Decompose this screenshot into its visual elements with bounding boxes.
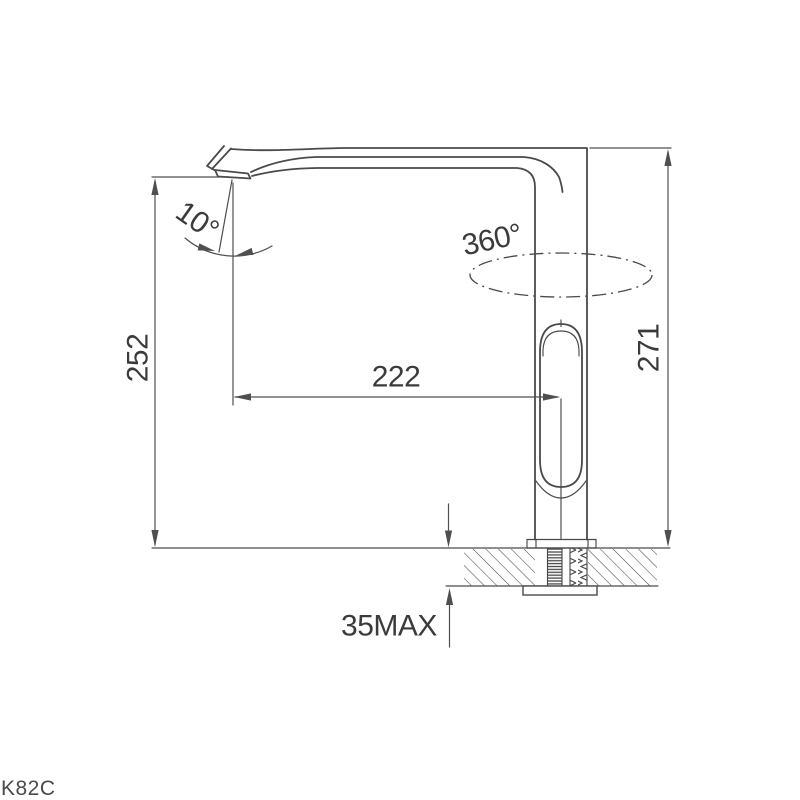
arrowhead	[151, 178, 158, 195]
supply-hose-section	[570, 549, 587, 587]
swivel-annotation: 360°	[459, 218, 652, 297]
spout-reach-label: 222	[372, 361, 421, 394]
countertop-hatch-right	[588, 549, 657, 586]
spout-height-label: 252	[122, 334, 155, 383]
angle-arrow-right	[235, 248, 253, 259]
arrowhead	[446, 588, 453, 605]
arrowhead	[664, 530, 671, 547]
dimension-deck-thickness: 35MAX	[341, 504, 453, 647]
drawing-canvas: 360° 10° 252 222	[0, 0, 800, 800]
spout-mid-line	[251, 157, 563, 192]
swivel-ellipse	[470, 253, 652, 297]
overall-height-label: 271	[633, 324, 666, 373]
dimension-spout-reach: 222	[233, 183, 560, 405]
base-flange	[527, 540, 596, 549]
arrowhead	[445, 531, 452, 548]
faucet-technical-drawing: 360° 10° 252 222	[0, 0, 800, 800]
countertop-hatch-left	[464, 549, 535, 586]
mounting-nut	[523, 586, 597, 595]
spout-angle-annotation: 10°	[170, 180, 272, 259]
angle-reference-line	[219, 180, 232, 252]
deck-thickness-label: 35MAX	[341, 610, 437, 643]
arrowhead	[664, 149, 671, 166]
faucet-outline	[207, 146, 596, 548]
spout-angle-label: 10°	[170, 195, 225, 247]
arrowhead	[151, 530, 158, 547]
model-code-label: K82C	[1, 777, 56, 800]
arrowhead	[234, 393, 251, 400]
arrowhead	[543, 393, 560, 400]
handle-inner-top-line	[543, 331, 579, 356]
threaded-shank	[548, 549, 563, 587]
countertop-section	[152, 399, 670, 595]
dimension-overall-height: 271	[590, 148, 672, 547]
spout-top-edge	[231, 148, 587, 540]
nozzle-cut-lines	[207, 146, 231, 172]
